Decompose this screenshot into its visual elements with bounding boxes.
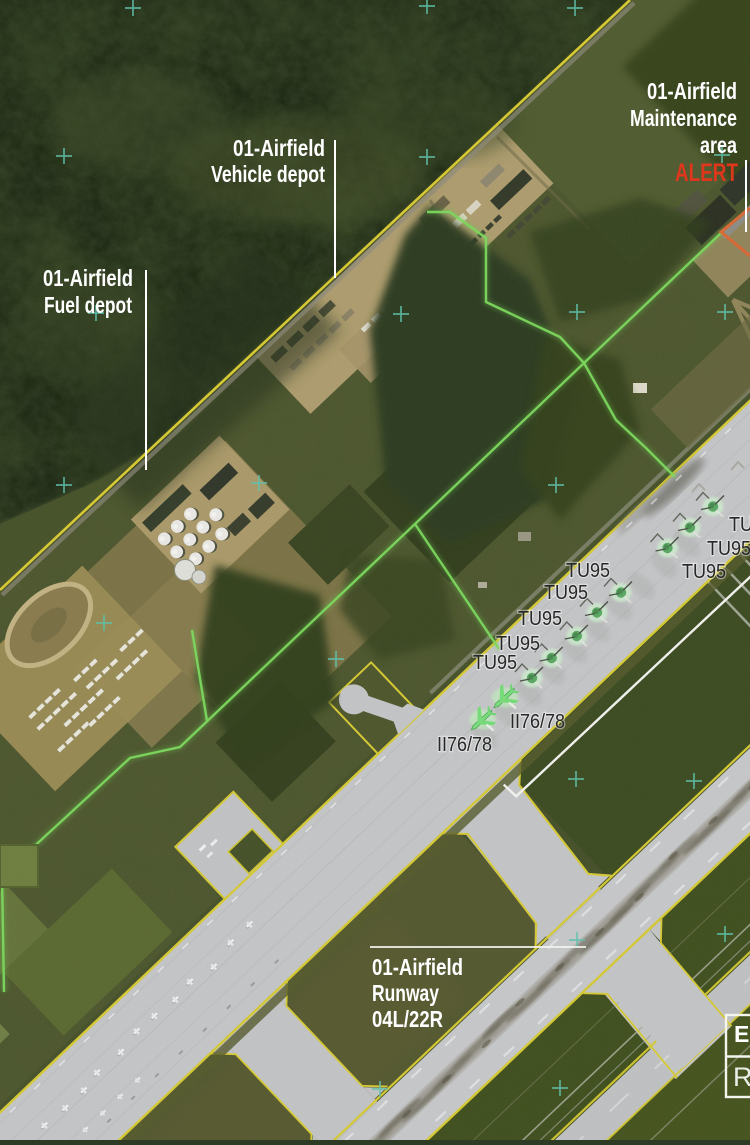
svg-text:TU95: TU95 <box>496 633 540 655</box>
svg-text:Vehicle depot: Vehicle depot <box>211 161 325 187</box>
svg-text:TU95: TU95 <box>544 582 588 604</box>
svg-text:TU95: TU95 <box>518 608 562 630</box>
svg-text:04L/22R: 04L/22R <box>372 1006 443 1032</box>
svg-text:01-Airfield: 01-Airfield <box>43 265 133 291</box>
svg-text:area: area <box>700 132 737 158</box>
svg-text:01-Airfield: 01-Airfield <box>647 78 737 104</box>
svg-text:En: En <box>734 1021 750 1047</box>
svg-text:TU95: TU95 <box>682 561 726 583</box>
svg-text:ALERT: ALERT <box>675 159 738 187</box>
svg-text:TU95: TU95 <box>707 538 750 560</box>
svg-text:Fuel depot: Fuel depot <box>44 292 132 318</box>
svg-text:TU95: TU95 <box>566 560 610 582</box>
svg-text:TU95: TU95 <box>729 514 750 536</box>
svg-text:Maintenance: Maintenance <box>630 105 737 131</box>
svg-text:II76/78: II76/78 <box>437 734 492 756</box>
svg-text:01-Airfield: 01-Airfield <box>233 135 325 161</box>
svg-text:TU95: TU95 <box>473 652 517 674</box>
svg-text:RU: RU <box>733 1062 750 1092</box>
svg-text:II76/78: II76/78 <box>510 711 565 733</box>
svg-text:Runway: Runway <box>372 980 439 1006</box>
svg-text:01-Airfield: 01-Airfield <box>372 954 463 980</box>
